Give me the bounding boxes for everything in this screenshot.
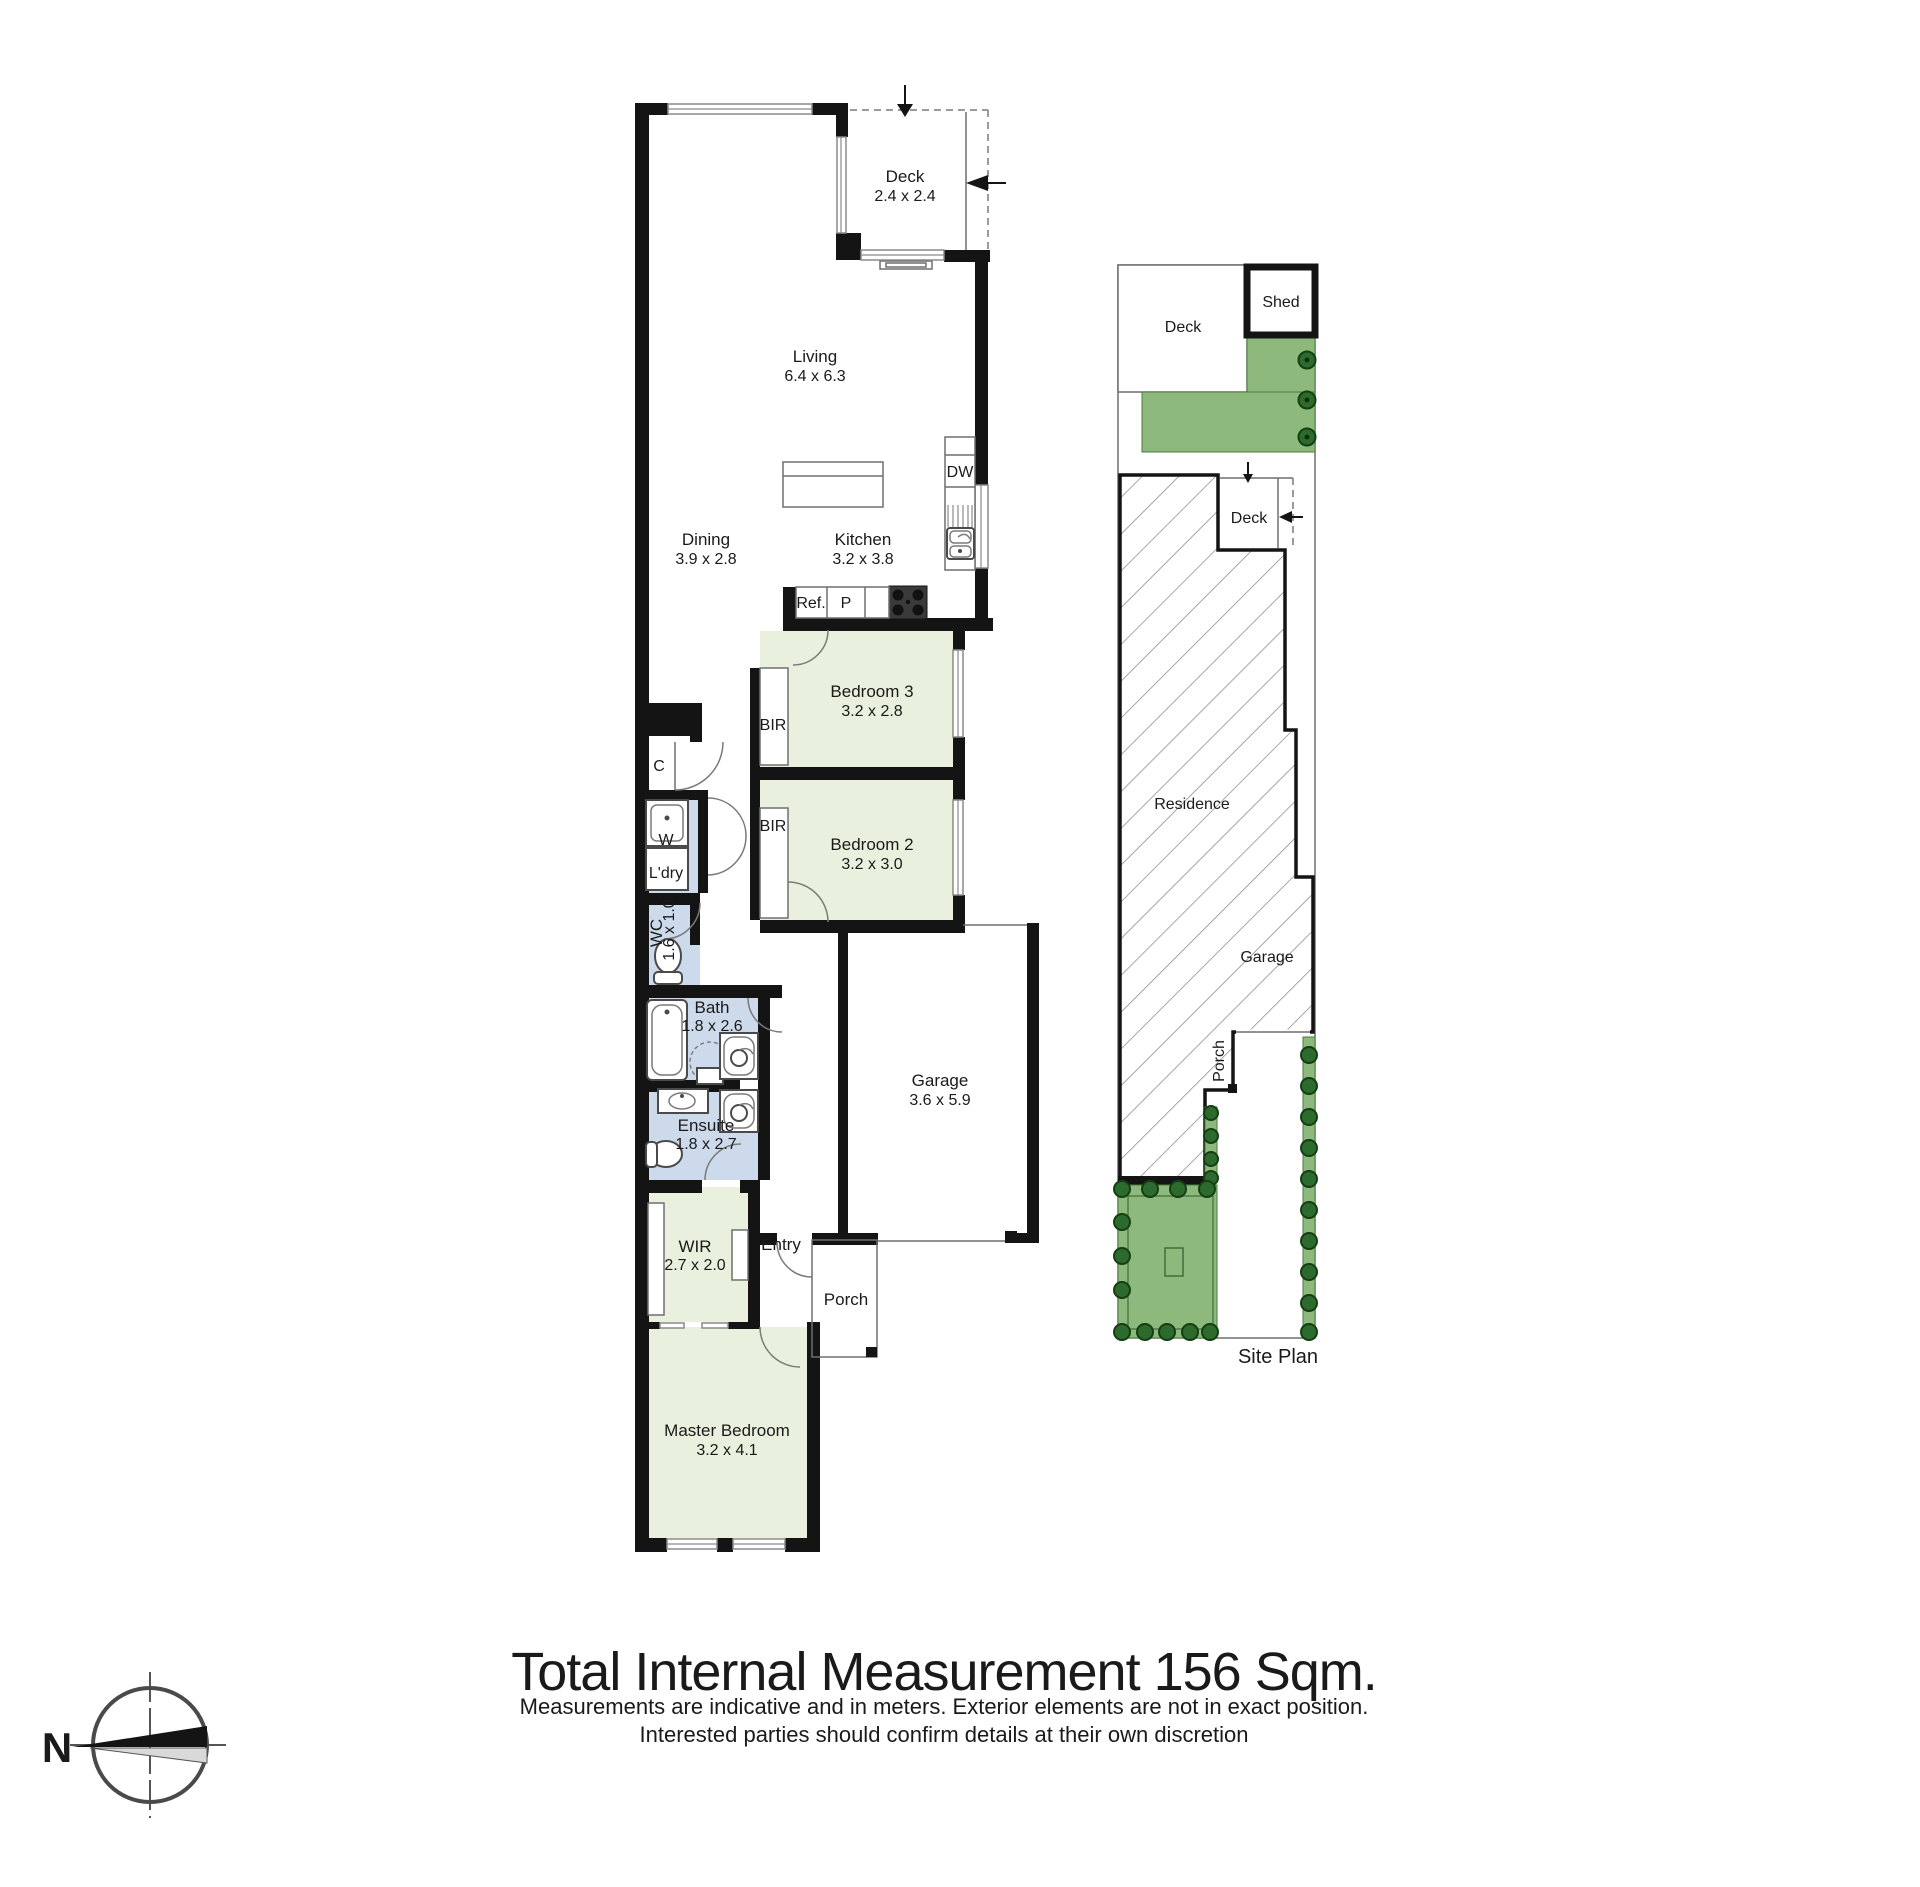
label-entry: Entry [761,1235,801,1254]
cooktop [889,586,927,619]
site-deck-mid [1220,462,1303,548]
floorplan-page: Living 6.4 x 6.3 Dining 3.9 x 2.8 Kitche… [0,0,1920,1882]
dims-kitchen: 3.2 x 3.8 [832,551,893,568]
window-kitchen [975,485,988,568]
label-ensuite: Ensuite [678,1116,735,1135]
label-wir: WIR [678,1237,711,1256]
label-laundry: L'dry [649,865,683,882]
kitchen-sink [947,528,974,559]
dims-bedroom3: 3.2 x 2.8 [841,703,902,720]
dims-bath: 1.8 x 2.6 [681,1018,742,1035]
label-kitchen: Kitchen [835,530,892,549]
window-bedroom3 [953,650,963,737]
label-pantry: P [841,595,852,612]
site-rear-garden [1114,1181,1218,1340]
label-porch: Porch [824,1290,868,1309]
window-top [668,104,812,114]
floorplan-drawing: Living 6.4 x 6.3 Dining 3.9 x 2.8 Kitche… [0,0,1920,1882]
deck-step [880,261,932,269]
compass-needle-south [90,1748,207,1763]
label-garage: Garage [912,1071,969,1090]
label-master-bedroom: Master Bedroom [664,1421,790,1440]
deck-entry-arrow-left [966,175,1006,191]
site-plan-caption: Site Plan [1238,1346,1318,1368]
total-measurement-title: Total Internal Measurement 156 Sqm. [511,1642,1376,1702]
label-linen: C [653,758,665,775]
site-lawn-top [1142,392,1315,452]
site-label-shed: Shed [1262,294,1299,311]
kitchen-counter [945,437,975,570]
footer: Total Internal Measurement 156 Sqm. Meas… [511,1642,1376,1747]
site-trees-top [1299,352,1316,446]
window-bedroom2 [953,800,963,895]
dims-dining: 3.9 x 2.8 [675,551,736,568]
dims-ensuite: 1.8 x 2.7 [675,1136,736,1153]
dims-wc: 1.6 x 1.0 [661,899,678,960]
site-residence-rear-wall [1118,1176,1207,1185]
door-laundry-bottom [708,836,746,875]
deck-top [850,85,1006,269]
dims-master-bedroom: 3.2 x 4.1 [696,1442,757,1459]
label-dining: Dining [682,530,730,549]
kitchen-island [783,462,883,507]
dims-wir: 2.7 x 2.0 [664,1257,725,1274]
window-master-2 [733,1539,785,1549]
sliding-door-deck [861,250,944,260]
window-deck-side [837,137,846,233]
wir-closet [732,1230,748,1280]
ensuite-vanity [658,1089,708,1113]
label-bedroom3: Bedroom 3 [830,682,913,701]
dims-living: 6.4 x 6.3 [784,368,845,385]
label-bir-bedroom2: BIR [760,818,787,835]
disclaimer-line2: Interested parties should confirm detail… [640,1722,1249,1747]
compass: N [42,1672,226,1818]
door-laundry-top [708,798,746,836]
dims-deck: 2.4 x 2.4 [874,188,935,205]
window-master-1 [667,1539,717,1549]
disclaimer-line1: Measurements are indicative and in meter… [520,1694,1369,1719]
site-label-deck-top: Deck [1165,319,1202,336]
site-label-residence: Residence [1154,796,1230,813]
compass-north-label: N [42,1724,72,1771]
deck-entry-arrow-down [897,85,913,117]
site-label-deck-mid: Deck [1231,510,1268,527]
bathtub [647,1000,687,1080]
label-deck: Deck [886,167,925,186]
label-bath: Bath [695,998,730,1017]
site-porch-step [1228,1084,1237,1093]
label-bedroom2: Bedroom 2 [830,835,913,854]
site-label-porch: Porch [1211,1040,1228,1082]
label-dishwasher: DW [947,464,975,481]
label-bir-bedroom3: BIR [760,717,787,734]
site-plan: Deck Shed Deck Residence Garage Porch Si… [1114,265,1318,1368]
wir-shelf [648,1203,664,1315]
label-fridge: Ref. [796,595,825,612]
door-linen [675,742,723,790]
label-living: Living [793,347,837,366]
dims-garage: 3.6 x 5.9 [909,1092,970,1109]
label-washer: W [658,832,674,849]
bath-shower [720,1033,758,1079]
site-label-garage: Garage [1240,949,1293,966]
dims-bedroom2: 3.2 x 3.0 [841,856,902,873]
